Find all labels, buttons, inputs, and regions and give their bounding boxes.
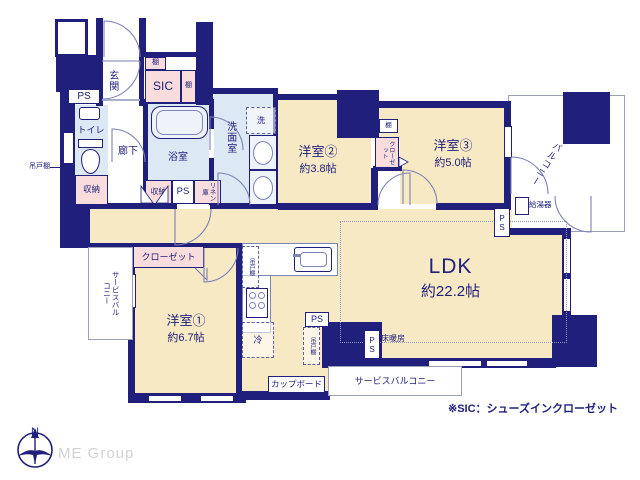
room2-size: 約3.8帖 [298, 163, 337, 176]
corner-box [55, 19, 88, 57]
window [63, 132, 74, 164]
stove [246, 288, 268, 318]
wall-segment [196, 22, 213, 105]
closet-box-room1: クローゼット [133, 246, 204, 268]
ps-box-mid: PS [172, 180, 194, 204]
hanging-shelf-pointer-label: 吊戸棚 [16, 162, 50, 172]
wall-segment [278, 94, 340, 100]
ps-box-kitchen: PS [305, 312, 329, 327]
wall-segment [337, 90, 379, 138]
compass-icon: N [10, 418, 62, 476]
service-balcony-left-label: サービスバルコニー [102, 271, 119, 317]
burner [258, 292, 265, 299]
room-label-bath: 浴室 [146, 151, 210, 164]
kitchen-faucet [293, 254, 301, 257]
fridge-space: 冷 [242, 322, 274, 358]
room2-name: 洋室② [298, 145, 337, 160]
room-label-room1: 洋室① 約6.7帖 [140, 305, 232, 353]
room-label-room3: 洋室③ 約5.0帖 [403, 132, 503, 176]
washroom-basin [249, 170, 277, 205]
washroom-basin [249, 135, 277, 170]
room-label-toilet: トイレ [73, 124, 109, 136]
wall-segment [60, 205, 90, 248]
room3-name: 洋室③ [433, 139, 472, 154]
service-balcony-left: サービスバルコニー [88, 247, 133, 340]
bathtub [151, 106, 208, 139]
brand-watermark: ME Group [58, 444, 168, 464]
washer-space: 洗 [246, 107, 276, 134]
room-label-hallway: 廊下 [111, 145, 145, 158]
ps-box-top-left: PS [68, 89, 100, 104]
storage-box-mid: 収納 [145, 180, 172, 204]
burner [249, 302, 256, 309]
toilet-sink [79, 107, 100, 120]
wall-segment [375, 101, 511, 108]
kitchen-sink-basin [300, 252, 327, 267]
ps-box-bottom: PS [364, 330, 380, 359]
toilet-tank [78, 139, 103, 148]
closet-box-room3: クローゼット [375, 137, 399, 168]
wall-segment [209, 99, 214, 129]
shelf-box-sic-right: 棚 [181, 70, 196, 103]
cupboard-box: カップボード [268, 376, 325, 393]
wall-segment [213, 88, 278, 94]
room1-name: 洋室① [166, 314, 205, 329]
wall-segment [56, 55, 100, 92]
burner [258, 302, 265, 309]
hanging-shelf-pointer-line [50, 167, 62, 168]
wall-segment [278, 203, 378, 210]
hanging-shelf-kitchen-top: 吊戸棚 [242, 246, 259, 288]
ps-box-right: PS [494, 208, 510, 237]
kitchen-sink [294, 247, 332, 272]
room1-size: 約6.7帖 [166, 332, 205, 345]
hanging-shelf-kitchen-bottom: 吊戸棚 [303, 327, 320, 365]
room-label-entrance: 玄関 [103, 58, 121, 104]
sic-footnote: ※SIC：シューズインクローゼット [448, 402, 640, 417]
shelf-box-room3: 棚 [379, 119, 398, 133]
water-heater-label: 給湯器 [529, 200, 571, 211]
linen-box: リネン庫 [194, 180, 221, 204]
window [200, 395, 234, 402]
shelf-box-sic-top: 棚 [145, 57, 166, 70]
room3-size: 約5.0帖 [433, 157, 472, 170]
ldk-size: 約22.2帖 [421, 283, 480, 300]
window [486, 360, 528, 367]
room-label-ldk: LDK 約22.2帖 [368, 250, 533, 305]
window [148, 395, 182, 402]
washroom-basin-bowl [253, 141, 273, 165]
washroom-basin-bowl [253, 176, 273, 200]
ldk-name: LDK [421, 255, 480, 279]
water-heater-box [515, 197, 529, 215]
service-balcony-bottom: サービスバルコニー [328, 366, 462, 396]
storage-box-left: 収納 [75, 175, 108, 205]
room-label-washroom: 洗面室 [221, 110, 239, 165]
room-label-room2: 洋室② 約3.8帖 [276, 138, 360, 182]
window [504, 126, 512, 158]
burner [249, 292, 256, 299]
wall-segment [371, 168, 378, 206]
sic-room: SIC [145, 70, 181, 103]
bathtub-inner [156, 110, 203, 135]
floor-plan: 玄関 棚 SIC 棚 PS トイレ 廊下 浴室 洗面室 収納 収納 PS リネン… [0, 0, 640, 480]
